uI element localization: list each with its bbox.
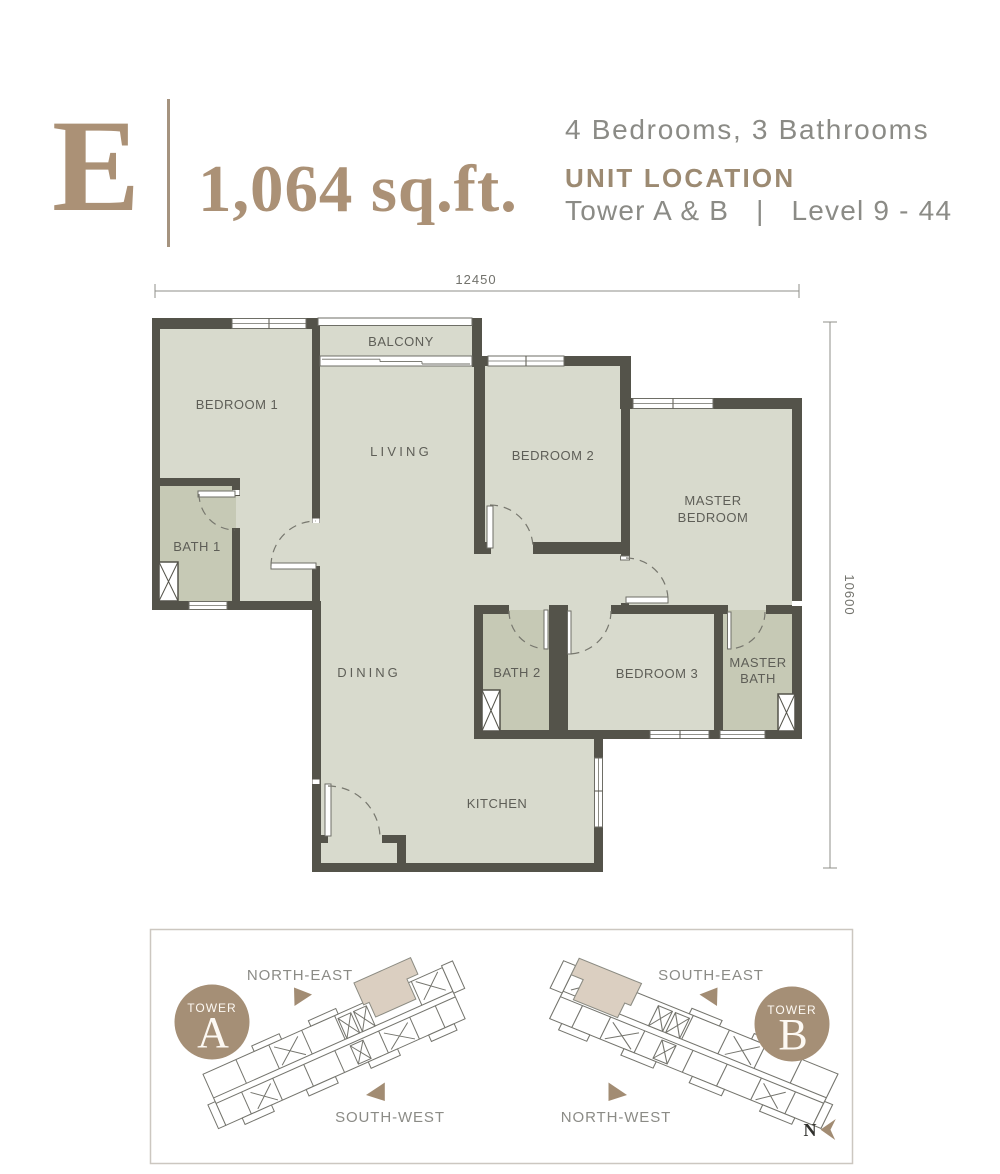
- svg-text:BEDROOM: BEDROOM: [678, 510, 749, 525]
- svg-text:MASTER: MASTER: [729, 655, 786, 670]
- svg-text:DINING: DINING: [337, 665, 401, 680]
- svg-text:BATH: BATH: [740, 671, 776, 686]
- svg-text:B: B: [778, 1010, 807, 1059]
- svg-text:NORTH-EAST: NORTH-EAST: [247, 967, 353, 984]
- svg-text:BEDROOM 2: BEDROOM 2: [512, 448, 595, 463]
- svg-text:BEDROOM 1: BEDROOM 1: [196, 397, 279, 412]
- svg-text:SOUTH-EAST: SOUTH-EAST: [658, 967, 764, 984]
- svg-text:LIVING: LIVING: [370, 444, 432, 459]
- svg-text:SOUTH-WEST: SOUTH-WEST: [335, 1109, 445, 1126]
- svg-text:NORTH-WEST: NORTH-WEST: [561, 1109, 671, 1126]
- svg-text:BALCONY: BALCONY: [368, 334, 434, 349]
- svg-text:BEDROOM 3: BEDROOM 3: [616, 666, 699, 681]
- svg-text:12450: 12450: [455, 272, 496, 287]
- svg-text:BATH 2: BATH 2: [493, 665, 541, 680]
- svg-text:BATH 1: BATH 1: [173, 539, 221, 554]
- svg-text:MASTER: MASTER: [684, 493, 741, 508]
- svg-text:N: N: [804, 1120, 817, 1140]
- svg-text:KITCHEN: KITCHEN: [467, 796, 528, 811]
- svg-text:A: A: [197, 1008, 229, 1057]
- svg-text:10600: 10600: [842, 574, 857, 615]
